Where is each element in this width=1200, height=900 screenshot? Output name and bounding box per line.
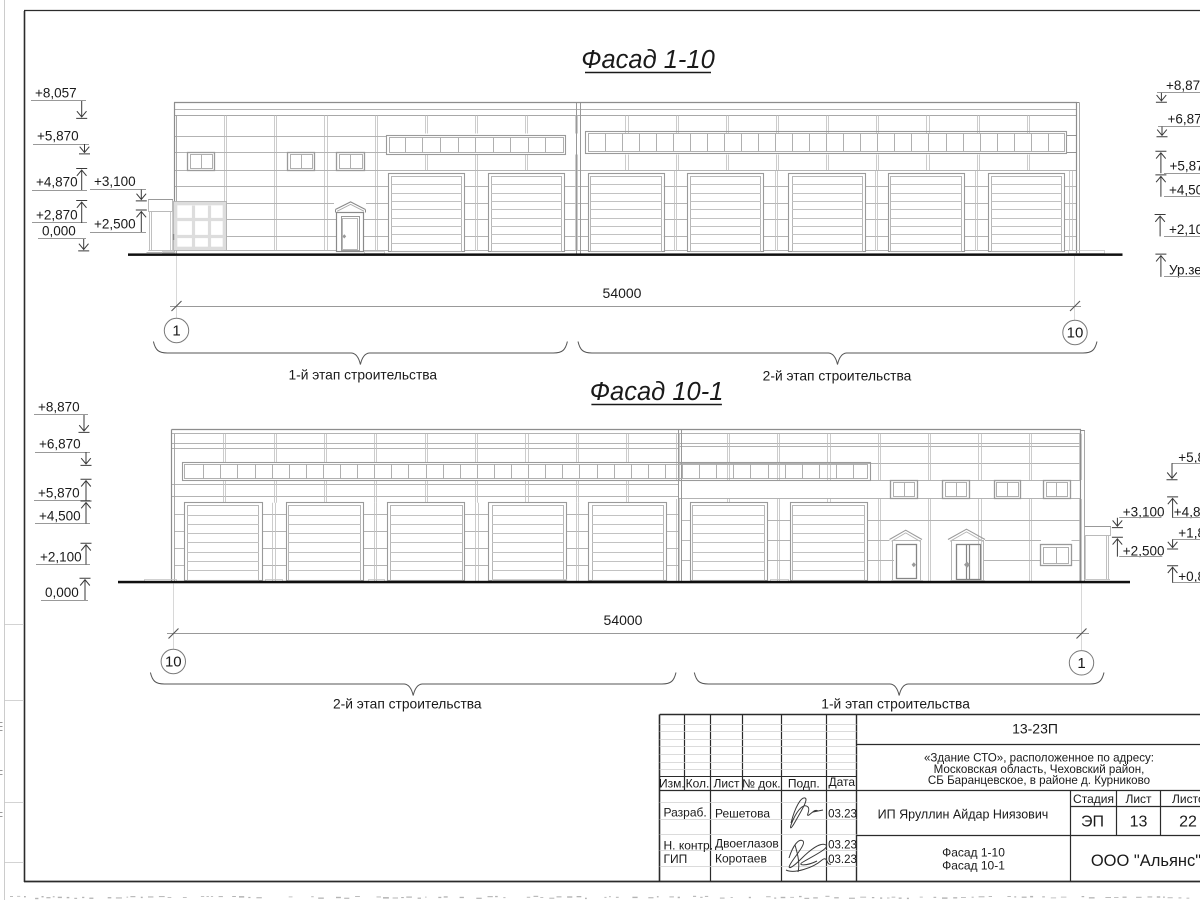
svg-text:1-й этап строительства: 1-й этап строительства — [821, 697, 970, 712]
svg-text:+5,870: +5,870 — [37, 129, 79, 144]
svg-text:+5,870: +5,870 — [1170, 159, 1200, 174]
svg-text:СБ Баранцевское, в районе д. К: СБ Баранцевское, в районе д. Курниково — [928, 774, 1150, 787]
svg-text:22: 22 — [1179, 814, 1197, 831]
svg-text:Подп.: Подп. — [788, 776, 820, 790]
svg-text:Фасад 10-1: Фасад 10-1 — [590, 378, 724, 406]
svg-text:54000: 54000 — [604, 612, 643, 628]
svg-text:+0,870: +0,870 — [1178, 569, 1200, 584]
svg-text:+2,500: +2,500 — [94, 217, 136, 232]
svg-text:+2,870: +2,870 — [36, 208, 78, 223]
svg-text:10: 10 — [165, 654, 182, 671]
svg-text:№ док.: № док. — [742, 776, 780, 790]
svg-text:ЭП: ЭП — [1081, 814, 1104, 831]
svg-text:+2,100: +2,100 — [1169, 222, 1200, 237]
svg-text:Коротаев: Коротаев — [715, 852, 767, 866]
svg-text:ИП Яруллин Айдар Ниязович: ИП Яруллин Айдар Ниязович — [878, 808, 1049, 822]
svg-text:Лист: Лист — [1125, 792, 1152, 806]
svg-text:2-й этап строительства: 2-й этап строительства — [763, 369, 912, 384]
svg-text:ГИП: ГИП — [664, 852, 688, 866]
svg-text:Стадия: Стадия — [1073, 792, 1114, 806]
svg-text:0,000: 0,000 — [45, 585, 79, 600]
svg-text:Ур.земли: Ур.земли — [1169, 263, 1200, 278]
svg-text:1-й этап строительства: 1-й этап строительства — [288, 368, 437, 383]
svg-text:+4,500: +4,500 — [39, 509, 81, 524]
svg-text:13: 13 — [1130, 814, 1148, 831]
svg-text:10: 10 — [1067, 325, 1084, 342]
svg-text:Дата: Дата — [829, 775, 856, 789]
svg-text:+8,870: +8,870 — [1166, 78, 1200, 93]
svg-text:Листов: Листов — [1172, 792, 1200, 806]
svg-text:+2,100: +2,100 — [40, 550, 82, 565]
svg-text:+5,870: +5,870 — [1178, 450, 1200, 465]
svg-text:2-й этап строительства: 2-й этап строительства — [333, 697, 482, 712]
svg-text:Кол.: Кол. — [686, 776, 710, 790]
svg-text:+5,870: +5,870 — [38, 486, 80, 501]
svg-text:Фасад 1-10: Фасад 1-10 — [581, 46, 715, 74]
svg-text:+3,100: +3,100 — [94, 174, 136, 189]
svg-text:13-23П: 13-23П — [1012, 721, 1058, 737]
svg-text:+8,057: +8,057 — [35, 86, 77, 101]
svg-text:Разраб.: Разраб. — [664, 806, 707, 820]
svg-text:0,000: 0,000 — [42, 224, 76, 239]
svg-text:Н. контр.: Н. контр. — [664, 839, 714, 853]
svg-text:Изм.: Изм. — [659, 776, 685, 790]
svg-text:Фасад 10-1: Фасад 10-1 — [942, 859, 1005, 873]
svg-text:54000: 54000 — [603, 285, 642, 301]
svg-text:Фасад 1-10: Фасад 1-10 — [942, 846, 1005, 860]
svg-text:+6,870: +6,870 — [39, 437, 81, 452]
svg-text:1: 1 — [172, 323, 180, 340]
svg-text:ООО "Альянс": ООО "Альянс" — [1091, 852, 1200, 870]
svg-text:03.23: 03.23 — [828, 809, 857, 821]
svg-text:+8,870: +8,870 — [38, 400, 80, 415]
svg-text:03.23: 03.23 — [828, 854, 857, 866]
svg-text:+6,870: +6,870 — [1168, 112, 1200, 127]
svg-text:03.23: 03.23 — [828, 840, 857, 852]
svg-text:Решетова: Решетова — [715, 807, 770, 821]
svg-text:+4,870: +4,870 — [36, 175, 78, 190]
svg-text:Двоеглазов: Двоеглазов — [715, 837, 779, 851]
svg-text:1: 1 — [1077, 655, 1085, 672]
svg-text:Лист: Лист — [713, 776, 740, 790]
svg-text:+1,870: +1,870 — [1178, 526, 1200, 541]
svg-text:+4,500: +4,500 — [1169, 183, 1200, 198]
